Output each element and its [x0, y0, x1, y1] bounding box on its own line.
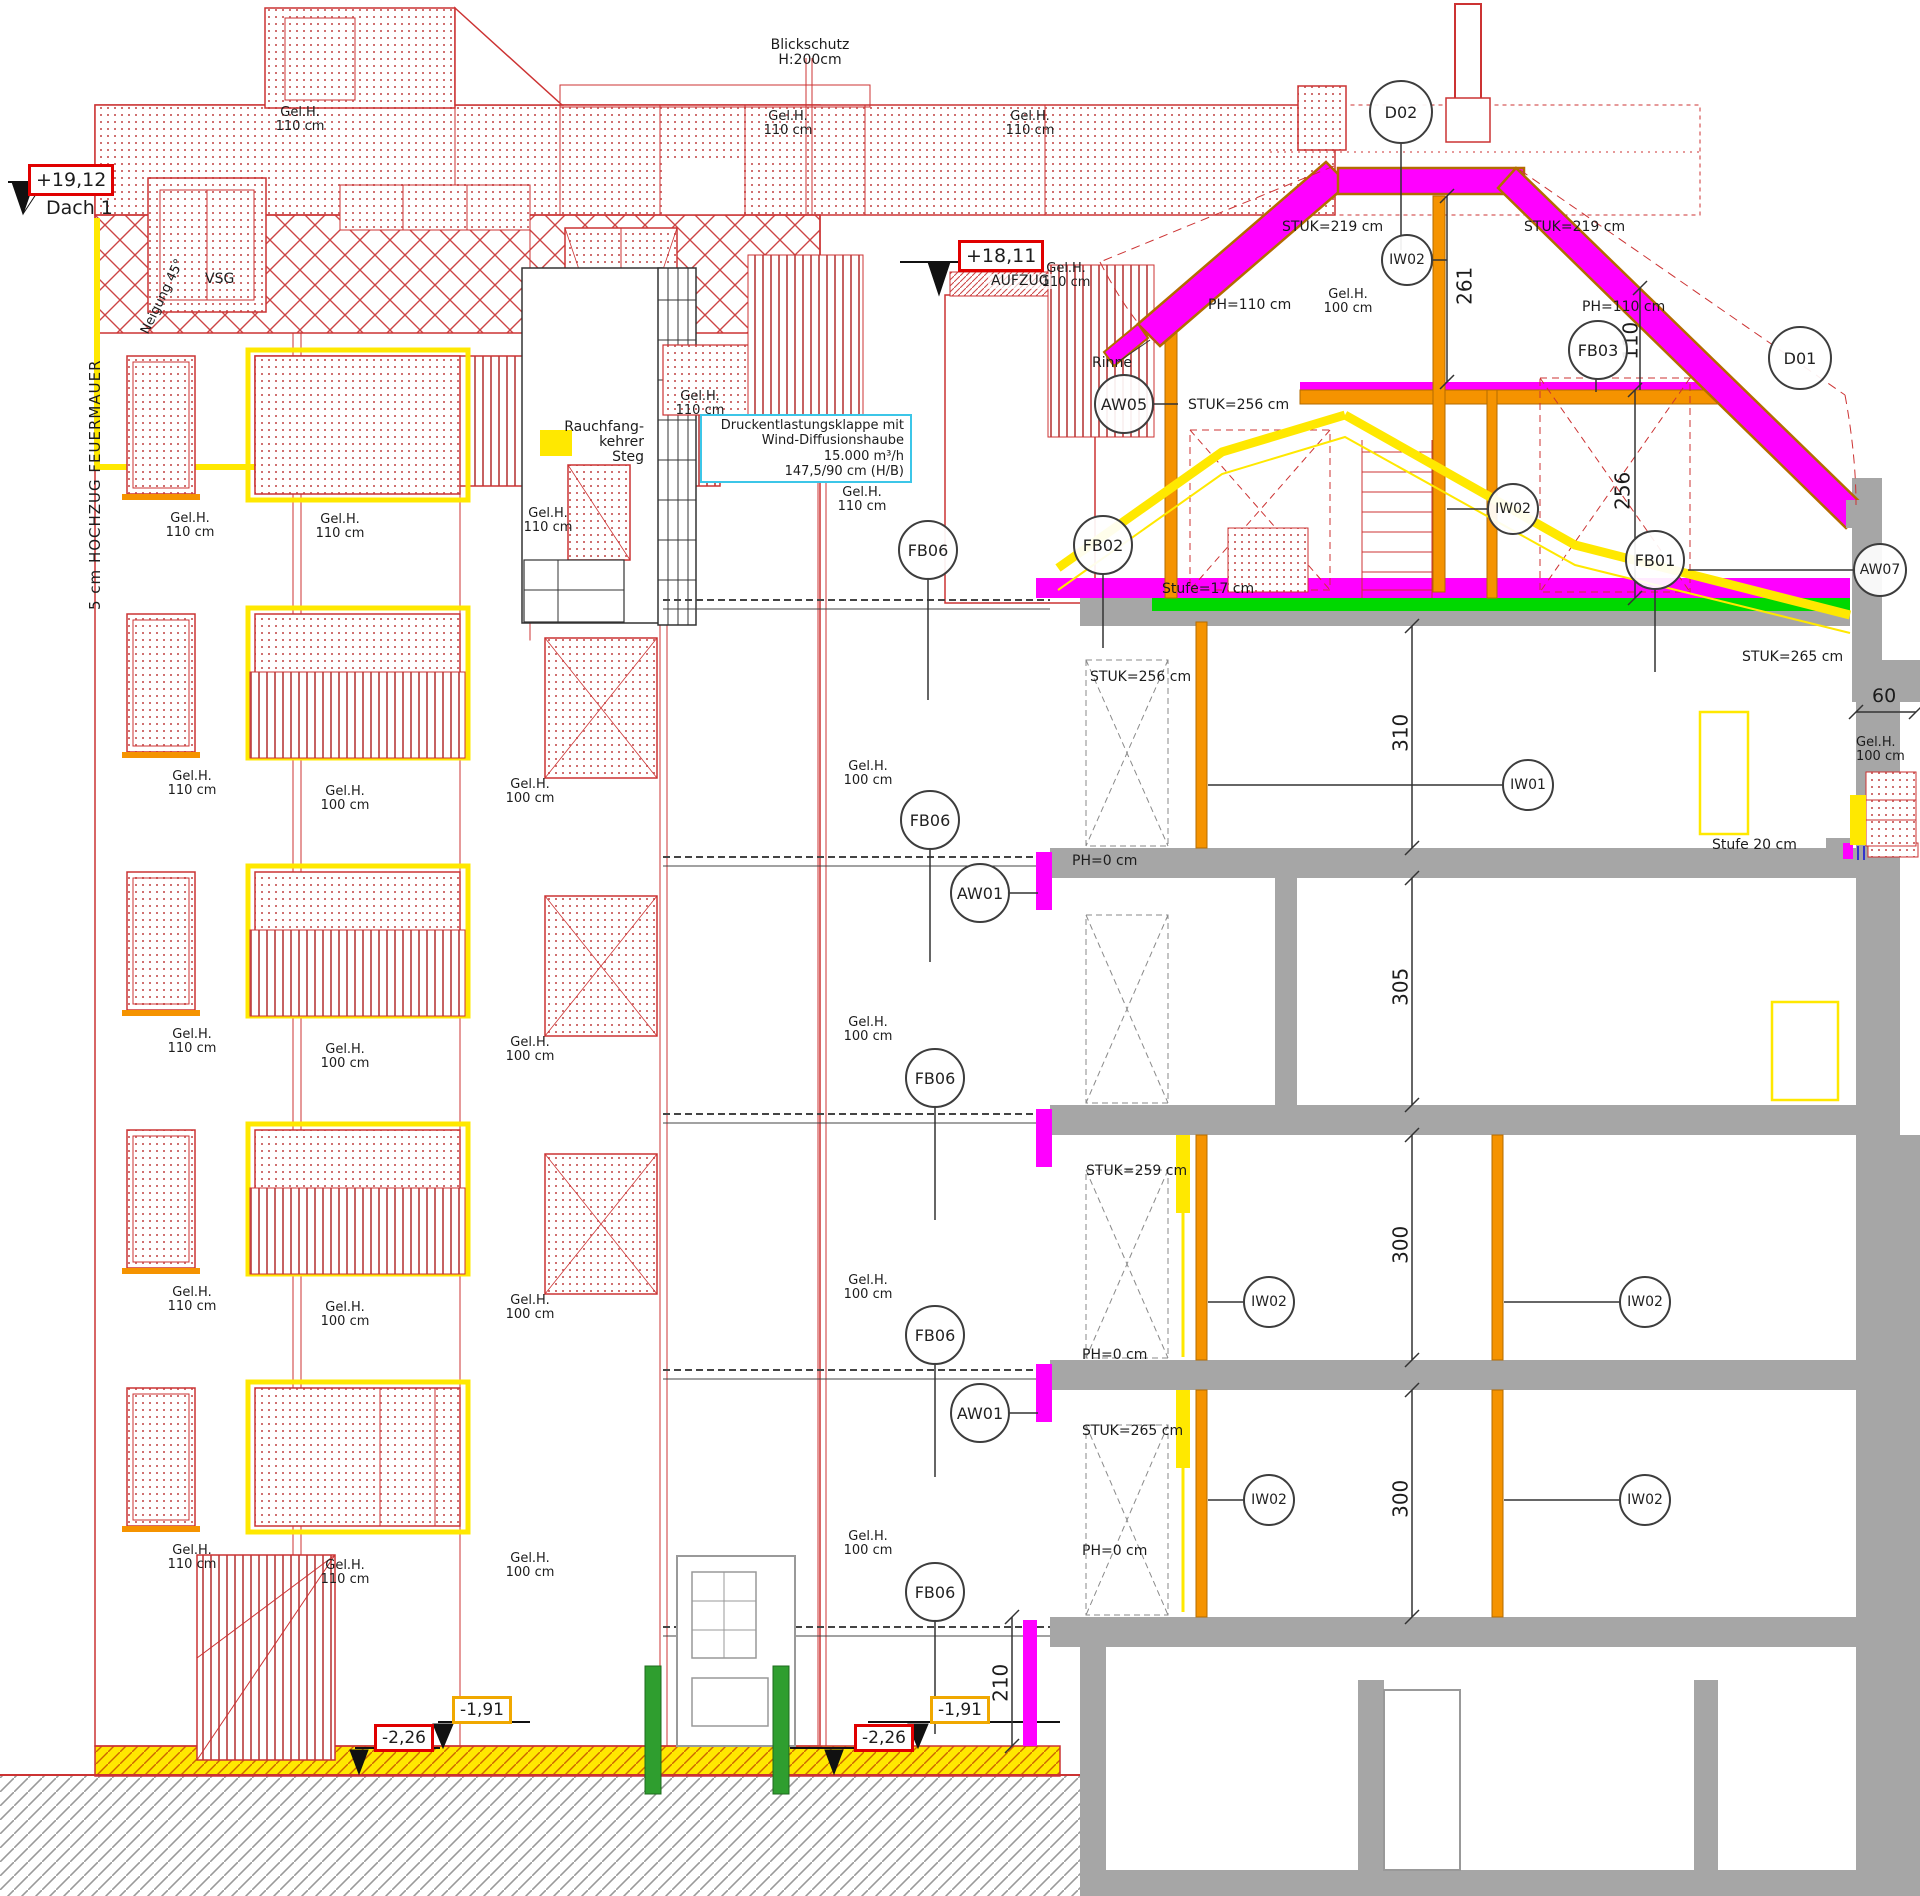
gelh-label: Gel.H.100 cm: [844, 760, 893, 788]
callout-iw01: IW01: [1502, 759, 1554, 811]
feuermauer-note: 5 cm HOCHZUG FEUERMAUER: [86, 360, 104, 611]
stuk-label: STUK=265 cm: [1742, 650, 1843, 665]
gelh-label: Gel.H.110 cm: [764, 110, 813, 138]
stuk-label: STUK=256 cm: [1188, 398, 1289, 413]
callout-iw02: IW02: [1487, 483, 1539, 535]
dormer: [265, 8, 455, 108]
callout-fb06: FB06: [905, 1562, 965, 1622]
callout-iw02: IW02: [1381, 234, 1433, 286]
dim-300: 300: [1390, 1226, 1412, 1264]
blickschutz-note: Blickschutz H:200cm: [771, 38, 850, 68]
drawing-sheet: +19,12 Dach 1 +18,11 AUFZUG -1,91 -2,26 …: [0, 0, 1920, 1896]
window-row: [122, 608, 657, 778]
dim-256: 256: [1612, 472, 1634, 510]
dim-210: 210: [990, 1664, 1012, 1702]
level-minus191: -1,91: [930, 1696, 990, 1724]
window-row: [122, 350, 468, 500]
gelh-label: Gel.H.110 cm: [166, 512, 215, 540]
level-value-aufzug: +18,11: [958, 240, 1044, 272]
gelh-label: Gel.H.110 cm: [168, 1544, 217, 1572]
callout-iw02: IW02: [1243, 1474, 1295, 1526]
gelh-label: Gel.H.100 cm: [844, 1530, 893, 1558]
dim-310: 310: [1390, 714, 1412, 752]
gelh-label: Gel.H.110 cm: [168, 1286, 217, 1314]
callout-fb03: FB03: [1568, 320, 1628, 380]
green-post: [773, 1666, 789, 1794]
ph-label: PH=110 cm: [1208, 298, 1291, 313]
gelh-label: Gel.H.100 cm: [506, 778, 555, 806]
callout-fb01: FB01: [1625, 530, 1685, 590]
slab-edges: [663, 600, 1050, 1636]
stufe-label: Stufe=17 cm: [1162, 582, 1254, 597]
callout-fb06: FB06: [905, 1305, 965, 1365]
level-value-roof: +19,12: [28, 164, 114, 196]
window-row: [122, 1382, 468, 1532]
stuk-label: STUK=219 cm: [1282, 220, 1383, 235]
green-post: [645, 1666, 661, 1794]
gelh-label: Gel.H.100 cm: [321, 1043, 370, 1071]
level-label-roof: Dach 1: [46, 198, 113, 219]
ph-label: PH=0 cm: [1072, 854, 1137, 869]
level-minus226: -2,26: [854, 1724, 914, 1752]
gelh-label: Gel.H.110 cm: [1006, 110, 1055, 138]
dim-300: 300: [1390, 1480, 1412, 1518]
gelh-label: Gel.H.110 cm: [524, 507, 573, 535]
roof: [1100, 4, 1868, 528]
callout-aw01: AW01: [950, 863, 1010, 923]
stuk-label: STUK=259 cm: [1086, 1164, 1187, 1179]
stuk-label: STUK=265 cm: [1082, 1424, 1183, 1439]
callout-iw02: IW02: [1619, 1276, 1671, 1328]
gelh-label: Gel.H.100 cm: [506, 1552, 555, 1580]
callout-aw05: AW05: [1094, 374, 1154, 434]
stufe-label: Stufe 20 cm: [1712, 838, 1797, 853]
callout-fb06: FB06: [898, 520, 958, 580]
callout-fb02: FB02: [1073, 515, 1133, 575]
gelh-label: Gel.H.110 cm: [168, 1028, 217, 1056]
gelh-label: Gel.H.100 cm: [506, 1036, 555, 1064]
ground-hatch: [0, 1746, 1080, 1896]
level-minus226: -2,26: [374, 1724, 434, 1752]
level-minus191: -1,91: [452, 1696, 512, 1724]
ph-label: PH=110 cm: [1582, 300, 1665, 315]
callout-fb06: FB06: [900, 790, 960, 850]
callout-iw02: IW02: [1243, 1276, 1295, 1328]
gelh-label: Gel.H.100 cm: [844, 1016, 893, 1044]
callout-fb06: FB06: [905, 1048, 965, 1108]
stuk-label: STUK=256 cm: [1090, 670, 1191, 685]
dim-305: 305: [1390, 968, 1412, 1006]
ph-label: PH=0 cm: [1082, 1348, 1147, 1363]
window-row: [122, 866, 657, 1036]
roof-flat-top: [1338, 168, 1524, 194]
gelh-label: Gel.H.110 cm: [1042, 262, 1091, 290]
gelh-label: Gel.H.100 cm: [506, 1294, 555, 1322]
attic-stair: [1362, 440, 1432, 598]
gelh-label: Gel.H.100 cm: [321, 785, 370, 813]
basement-wall-left: [1080, 1647, 1106, 1896]
callout-iw02: IW02: [1619, 1474, 1671, 1526]
green-floor-strip: [1152, 598, 1850, 611]
callout-aw01: AW01: [950, 1383, 1010, 1443]
ph-label: PH=0 cm: [1082, 1544, 1147, 1559]
terrace-railing: [748, 255, 863, 437]
rauchfang-note: Rauchfang- kehrer Steg: [556, 420, 644, 465]
gelh-label: Gel.H.100 cm: [1856, 736, 1905, 764]
gelh-label: Gel.H.110 cm: [276, 106, 325, 134]
gelh-label: Gel.H.110 cm: [676, 390, 725, 418]
gelh-label: Gel.H.100 cm: [844, 1274, 893, 1302]
gelh-label: Gel.H.110 cm: [168, 770, 217, 798]
gelh-label: Gel.H.100 cm: [1324, 288, 1373, 316]
vsg-label: VSG: [205, 272, 234, 287]
dim-261: 261: [1454, 267, 1476, 305]
druckentlastung-note: Druckentlastungsklappe mit Wind-Diffusio…: [700, 414, 912, 483]
gelh-label: Gel.H.110 cm: [838, 486, 887, 514]
stuk-label: STUK=219 cm: [1524, 220, 1625, 235]
rinne-label: Rinne: [1092, 356, 1132, 371]
gelh-label: Gel.H.110 cm: [321, 1559, 370, 1587]
gelh-label: Gel.H.110 cm: [316, 513, 365, 541]
section-elevation-drawing: [0, 0, 1920, 1896]
callout-aw07: AW07: [1853, 543, 1907, 597]
callout-d01: D01: [1768, 326, 1832, 390]
basement-door: [1384, 1690, 1460, 1870]
door-symbols: [1086, 660, 1168, 1615]
window-row: [122, 1124, 657, 1294]
dim-60: 60: [1872, 686, 1896, 707]
callout-d02: D02: [1369, 80, 1433, 144]
gelh-label: Gel.H.100 cm: [321, 1301, 370, 1329]
basement-slab: [1080, 1870, 1920, 1896]
